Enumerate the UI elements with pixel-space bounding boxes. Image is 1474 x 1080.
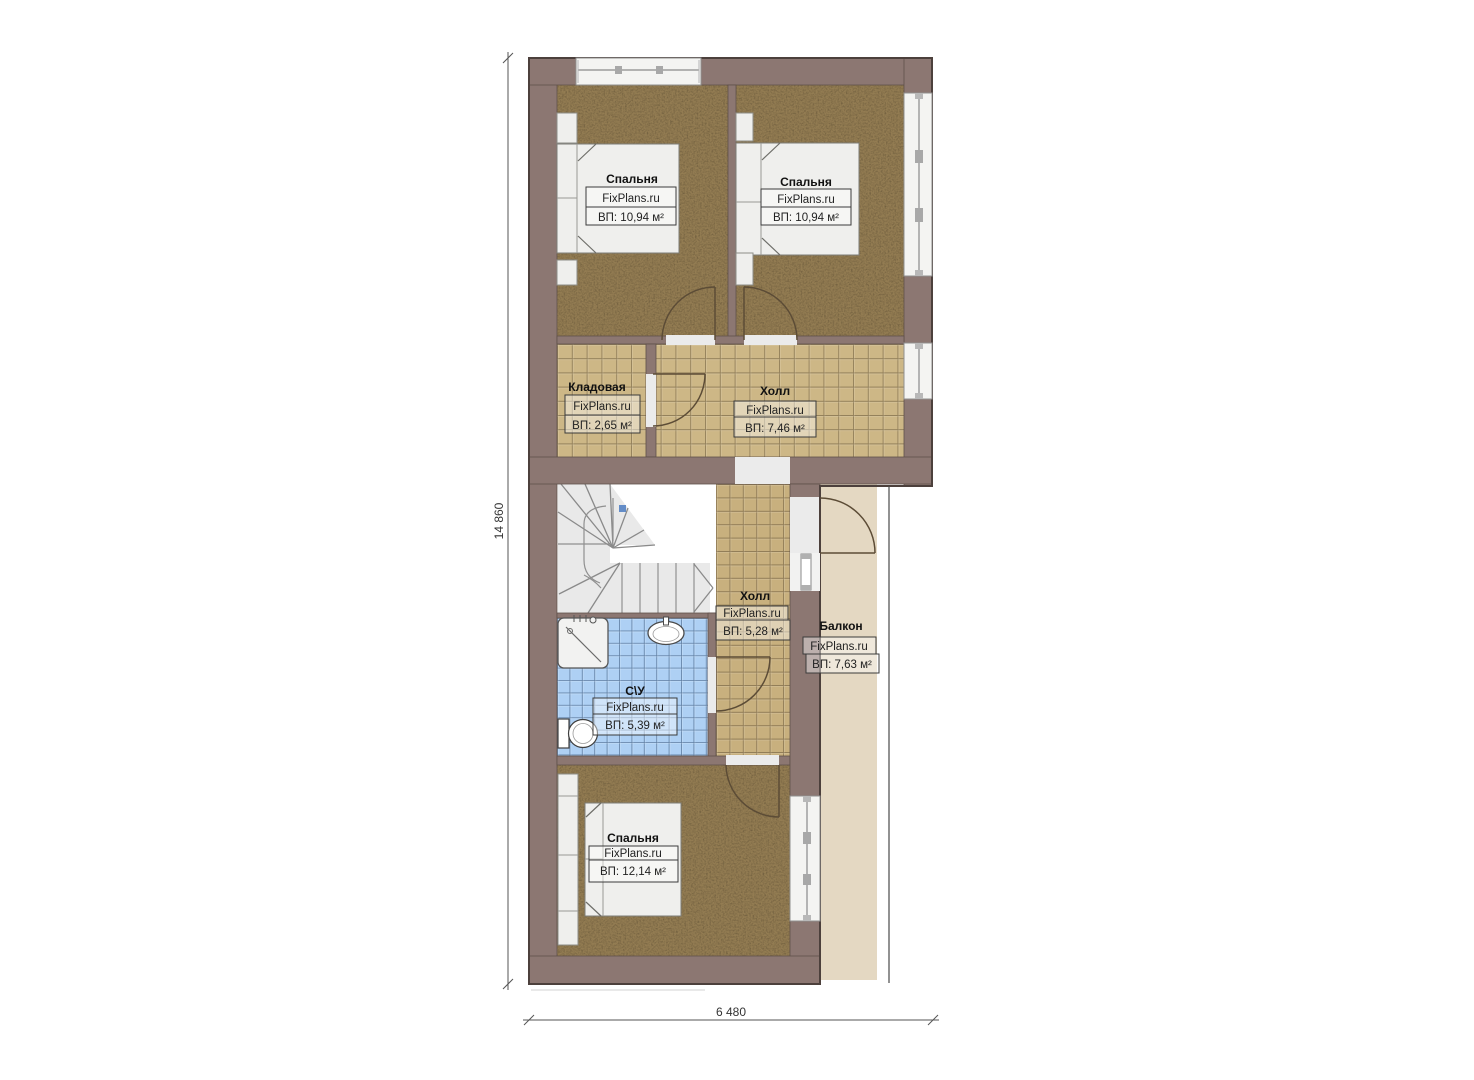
svg-text:Спальня: Спальня	[780, 175, 832, 189]
svg-text:FixPlans.ru: FixPlans.ru	[604, 848, 662, 860]
svg-text:Спальня: Спальня	[607, 831, 659, 845]
svg-text:Холл: Холл	[740, 589, 770, 603]
svg-text:ВП: 7,63 м²: ВП: 7,63 м²	[812, 659, 872, 671]
svg-text:FixPlans.ru: FixPlans.ru	[573, 401, 631, 413]
svg-text:ВП: 5,28 м²: ВП: 5,28 м²	[723, 626, 783, 638]
svg-text:FixPlans.ru: FixPlans.ru	[723, 608, 781, 620]
svg-text:14 860: 14 860	[492, 502, 506, 539]
svg-text:Спальня: Спальня	[606, 172, 658, 186]
svg-text:FixPlans.ru: FixPlans.ru	[777, 194, 835, 206]
svg-text:6 480: 6 480	[716, 1005, 746, 1019]
svg-text:Холл: Холл	[760, 384, 790, 398]
svg-text:ВП: 12,14 м²: ВП: 12,14 м²	[600, 866, 666, 878]
svg-text:Кладовая: Кладовая	[568, 380, 625, 394]
svg-text:FixPlans.ru: FixPlans.ru	[810, 641, 868, 653]
svg-text:FixPlans.ru: FixPlans.ru	[606, 702, 664, 714]
svg-text:С\У: С\У	[625, 684, 645, 698]
svg-text:FixPlans.ru: FixPlans.ru	[602, 193, 660, 205]
svg-text:ВП: 10,94 м²: ВП: 10,94 м²	[598, 212, 664, 224]
svg-text:ВП: 5,39 м²: ВП: 5,39 м²	[605, 720, 665, 732]
svg-text:FixPlans.ru: FixPlans.ru	[746, 405, 804, 417]
svg-text:ВП: 7,46 м²: ВП: 7,46 м²	[745, 423, 805, 435]
svg-text:Балкон: Балкон	[819, 619, 862, 633]
svg-text:ВП: 10,94 м²: ВП: 10,94 м²	[773, 212, 839, 224]
svg-text:ВП: 2,65 м²: ВП: 2,65 м²	[572, 420, 632, 432]
